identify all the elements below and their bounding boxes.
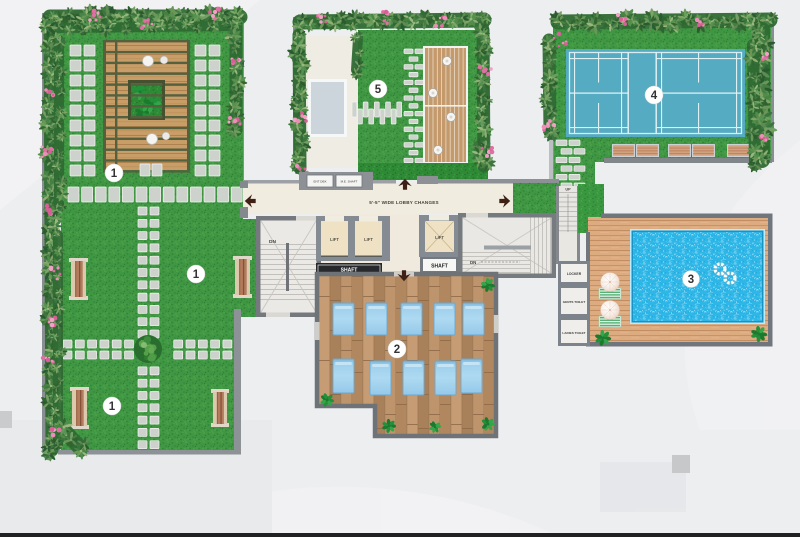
svg-text:ENT DBX: ENT DBX bbox=[314, 180, 327, 184]
svg-text:2: 2 bbox=[394, 344, 400, 356]
svg-text:DN: DN bbox=[269, 239, 276, 245]
svg-text:M.E. SHAFT: M.E. SHAFT bbox=[341, 180, 358, 184]
svg-text:LIFT: LIFT bbox=[330, 237, 339, 242]
svg-text:4: 4 bbox=[651, 90, 658, 102]
svg-text:LADIES TOILET: LADIES TOILET bbox=[562, 331, 585, 335]
svg-text:GENTS TOILET: GENTS TOILET bbox=[563, 300, 586, 304]
svg-text:3: 3 bbox=[688, 274, 694, 286]
svg-text:5'-5" WIDE LOBBY CHANGES: 5'-5" WIDE LOBBY CHANGES bbox=[369, 200, 439, 205]
svg-text:DN: DN bbox=[470, 260, 476, 265]
svg-text:LIFT: LIFT bbox=[364, 237, 373, 242]
svg-text:1: 1 bbox=[193, 269, 200, 281]
svg-text:5: 5 bbox=[375, 84, 382, 96]
svg-text:1: 1 bbox=[109, 401, 116, 413]
svg-text:LOCKER: LOCKER bbox=[567, 272, 582, 276]
svg-text:1: 1 bbox=[111, 168, 118, 180]
svg-text:SHAFT: SHAFT bbox=[431, 264, 448, 270]
svg-text:LIFT: LIFT bbox=[435, 235, 444, 240]
svg-text:UP: UP bbox=[565, 188, 571, 192]
